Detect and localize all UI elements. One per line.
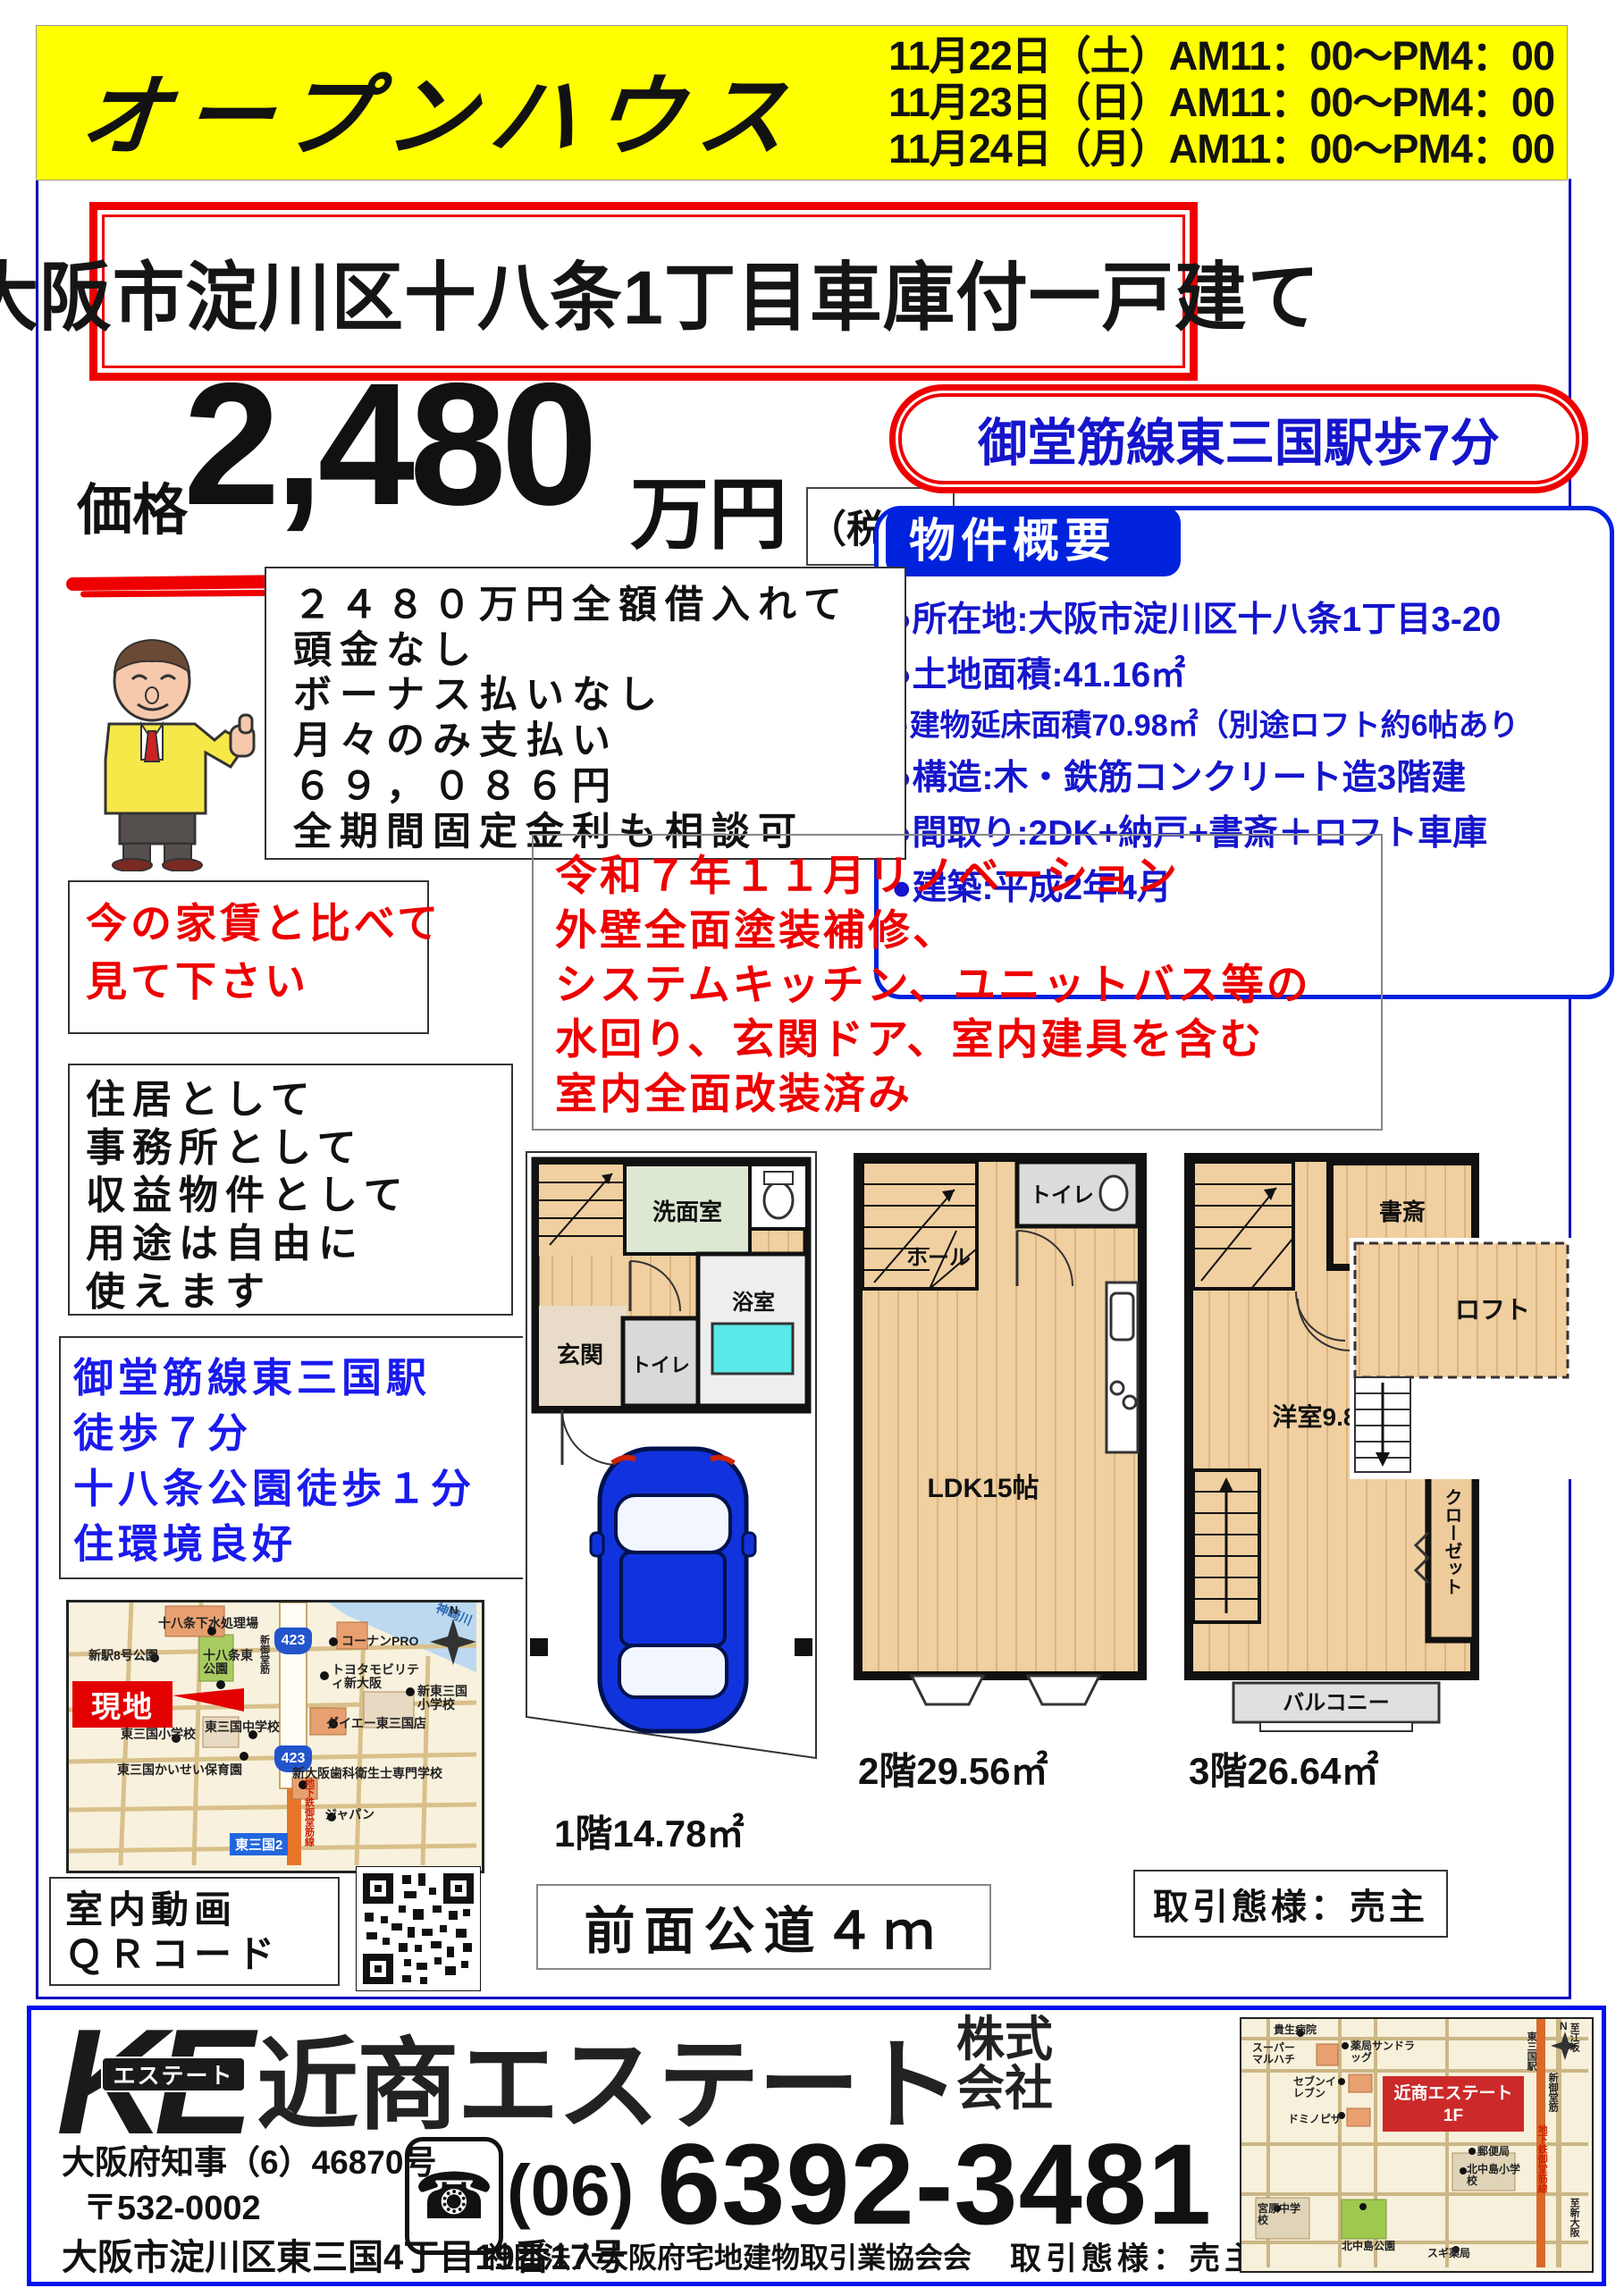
salesman-illustration <box>55 626 265 871</box>
floor-area-1f: 1階14.78㎡ <box>554 1804 744 1858</box>
mini-map-vlabel: 新御堂筋 <box>1547 2073 1558 2112</box>
map-label: 新駅8号公園 <box>88 1649 158 1662</box>
room-label-loft: ロフト <box>1455 1296 1530 1324</box>
map-label: 東三国かいせい保育園 <box>117 1763 242 1777</box>
office-marker: 近商エステート 1F <box>1383 2076 1524 2132</box>
company-suffix-line: 会社 <box>956 2065 1053 2114</box>
office-marker-name: 近商エステート <box>1383 2083 1524 2106</box>
overview-item-location: ●所在地:大阪市淀川区十八条1丁目3-20 <box>891 593 1604 648</box>
mini-map-label: 薬局サンドラッグ <box>1351 2040 1422 2064</box>
overview-item-structure: ●構造:木・鉄筋コンクリート造3階建 <box>891 751 1604 806</box>
room-label-toilet-2f: トイレ <box>1030 1183 1094 1207</box>
mini-map-label: 郵便局 <box>1477 2146 1510 2158</box>
usage-line: 住居として <box>86 1076 511 1124</box>
company-suffix: 株式 会社 <box>956 2015 1053 2114</box>
mini-map-label: 北中島公園 <box>1342 2241 1395 2252</box>
mini-map-vlabel: 東三国駅 <box>1526 2031 1536 2071</box>
usage-line: 用途は自由に <box>86 1220 511 1268</box>
floor-area-2f: 2階29.56㎡ <box>858 1741 1048 1796</box>
access-line: 住環境良好 <box>73 1517 526 1572</box>
footer-company-bar: KE エステート 近商エステート 株式 会社 大阪府知事（6）46870号 〒5… <box>27 2006 1606 2286</box>
station-badge-text: 御堂筋線東三国駅歩7分 <box>906 391 1572 487</box>
map-label: 新大阪歯科衛生士専門学校 <box>292 1767 442 1780</box>
mini-map-vlabel: 至新大阪 <box>1569 2198 1579 2237</box>
room-label-ldk: LDK15帖 <box>927 1474 1039 1503</box>
usage-line: 収益物件として <box>86 1172 511 1220</box>
map-label: ダイエー東三国店 <box>326 1717 426 1730</box>
room-label-bath: 浴室 <box>732 1290 775 1315</box>
usage-line: 使えます <box>86 1268 511 1316</box>
phone-number: 6392-3481 <box>657 2119 1212 2250</box>
company-logo-subtext: エステート <box>101 2057 246 2092</box>
open-house-banner: オープンハウス 11月22日（土）AM11：00～PM4：00 11月23日（日… <box>36 25 1568 181</box>
map-label: 東三国中学校 <box>205 1720 280 1734</box>
renovation-line: 水回り、玄関ドア、室内建具を含む <box>555 1012 1381 1066</box>
compass-icon: N <box>450 1604 458 1617</box>
floorplan-2f: ホール トイレ LDK15帖 <box>849 1148 1151 1729</box>
price-unit: 万円 <box>630 451 787 565</box>
mini-map-label: セブンイレブン <box>1293 2076 1342 2099</box>
renovation-line: 外壁全面塗装補修、 <box>555 903 1381 957</box>
loan-line: 月々のみ支払い <box>293 719 905 764</box>
room-label-entrance: 玄関 <box>557 1342 603 1368</box>
road-label: 新御堂筋 <box>258 1635 269 1674</box>
site-marker: 現地 <box>72 1681 172 1728</box>
subway-label: 地下鉄御堂筋線 <box>303 1778 314 1846</box>
usage-box: 住居として 事務所として 収益物件として 用途は自由に 使えます <box>68 1064 513 1316</box>
office-marker-floor: 1F <box>1383 2106 1524 2128</box>
rent-compare-box: 今の家賃と比べて 見て下さい <box>68 880 429 1034</box>
price-label: 価格 <box>77 465 188 545</box>
access-line: 徒歩７分 <box>73 1406 526 1461</box>
rent-compare-line: 今の家賃と比べて <box>86 895 427 953</box>
open-house-date: 11月24日（月）AM11：00～PM4：00 <box>888 126 1554 172</box>
mini-map-label: スギ薬局 <box>1427 2248 1470 2259</box>
map-label: トヨタモビリティ新大阪 <box>332 1663 430 1689</box>
license-number: 大阪府知事（6）46870号 <box>62 2135 436 2183</box>
station-badge: 御堂筋線東三国駅歩7分 <box>889 384 1588 493</box>
mini-map-label: 宮原中学校 <box>1258 2203 1302 2226</box>
property-title: 大阪市淀川区十八条1丁目車庫付一戸建て <box>0 238 1320 346</box>
postal-code: 〒532-0002 <box>83 2180 261 2229</box>
map-label: 十八条東公園 <box>203 1649 253 1675</box>
open-house-date: 11月22日（土）AM11：00～PM4：00 <box>888 33 1554 80</box>
office-map: 近商エステート 1F 貴生病院 スーパーマルハチ 薬局サンドラッグ セブンイレブ… <box>1240 2017 1594 2273</box>
qr-label-box: 室内動画 ＱＲコード <box>49 1877 340 1986</box>
mini-map-vlabel: 地下鉄御堂筋線 <box>1536 2124 1547 2193</box>
qr-label-line: ＱＲコード <box>65 1932 338 1977</box>
company-suffix-line: 株式 <box>956 2015 1053 2065</box>
access-line: 御堂筋線東三国駅 <box>73 1350 526 1406</box>
loan-line: 頭金なし <box>293 628 905 674</box>
deal-type-footer: 取引態様：売主 <box>1010 2233 1260 2279</box>
rent-compare-line: 見て下さい <box>86 953 427 1011</box>
loan-line: ボーナス払いなし <box>293 673 905 719</box>
open-house-dates: 11月22日（土）AM11：00～PM4：00 11月23日（日）AM11：00… <box>888 33 1554 172</box>
flyer-page: オープンハウス 11月22日（土）AM11：00～PM4：00 11月23日（日… <box>0 0 1624 2288</box>
room-label-toilet: トイレ <box>631 1354 690 1376</box>
mini-map-vlabel: 至江坂 <box>1569 2023 1579 2052</box>
road-note-box: 前面公道４ｍ <box>536 1884 991 1970</box>
renovation-line: 令和７年１１月リノベーション <box>555 848 1381 903</box>
area-map: 現地 423 423 東三国2 十八条下水処理場 新駅8号公園 十八条東公園 コ… <box>66 1600 484 1873</box>
map-label: ジャパン <box>324 1808 374 1821</box>
price-amount: 2,480 <box>183 357 593 532</box>
mini-map-label: 貴生病院 <box>1274 2024 1317 2036</box>
association-membership: 社団法人大阪府宅地建物取引業協会会 <box>485 2235 972 2276</box>
room-label-hall: ホール <box>906 1246 971 1270</box>
floorplan-1f: 洗面室 玄関 トイレ 浴室 <box>523 1148 820 1774</box>
loan-info-box: ２４８０万円全額借入れて 頭金なし ボーナス払いなし 月々のみ支払い ６９，０８… <box>265 567 906 860</box>
qr-label-line: 室内動画 <box>65 1888 338 1932</box>
mini-map-label: 北中島小学校 <box>1467 2164 1520 2187</box>
map-label: 東三国小学校 <box>121 1728 196 1741</box>
usage-line: 事務所として <box>86 1124 511 1173</box>
renovation-line: 室内全面改装済み <box>555 1066 1381 1121</box>
open-house-title: オープンハウス <box>74 44 808 173</box>
loan-line: ２４８０万円全額借入れて <box>293 583 905 628</box>
renovation-line: システムキッチン、ユニットバス等の <box>555 957 1381 1012</box>
access-line: 十八条公園徒歩１分 <box>73 1461 526 1517</box>
map-label: 新東三国小学校 <box>417 1685 473 1711</box>
map-label: コーナンPRO <box>341 1635 418 1648</box>
renovation-box: 令和７年１１月リノベーション外壁全面塗装補修、システムキッチン、ユニットバス等の… <box>532 834 1383 1131</box>
room-label-washroom: 洗面室 <box>652 1199 722 1225</box>
overview-header: 物件概要 <box>886 507 1181 576</box>
room-label-study: 書斎 <box>1379 1199 1426 1225</box>
property-title-inner-border: 大阪市淀川区十八条1丁目車庫付一戸建て <box>102 214 1185 368</box>
deal-type-box: 取引態様：売主 <box>1133 1870 1448 1938</box>
route-badge-icon: 423 <box>274 1628 312 1654</box>
qr-code-image <box>356 1866 481 1991</box>
open-house-date: 11月23日（日）AM11：00～PM4：00 <box>888 80 1554 126</box>
intersection-sign: 東三国2 <box>230 1833 288 1855</box>
overview-item-land-area: ●土地面積:41.16㎡ <box>891 648 1604 703</box>
phone-area-code: (06) <box>507 2149 634 2232</box>
room-label-closet2: クローゼット <box>1442 1488 1462 1595</box>
floorplan-loft: ロフト <box>1350 1238 1573 1479</box>
room-label-balcony: バルコニー <box>1283 1691 1390 1715</box>
mini-map-label: ドミノピザ <box>1288 2114 1342 2125</box>
compass-icon: N <box>1560 2021 1568 2032</box>
loan-line: ６９，０８６円 <box>293 764 905 810</box>
mini-map-label: スーパーマルハチ <box>1252 2042 1300 2065</box>
map-label: 十八条下水処理場 <box>158 1617 258 1630</box>
access-box: 御堂筋線東三国駅 徒歩７分 十八条公園徒歩１分 住環境良好 <box>59 1336 527 1579</box>
overview-item-floor-area: ●建物延床面積70.98㎡（別途ロフト約6帖あり <box>891 702 1604 751</box>
car-illustration <box>591 1449 755 1731</box>
floor-area-3f: 3階26.64㎡ <box>1189 1741 1378 1796</box>
